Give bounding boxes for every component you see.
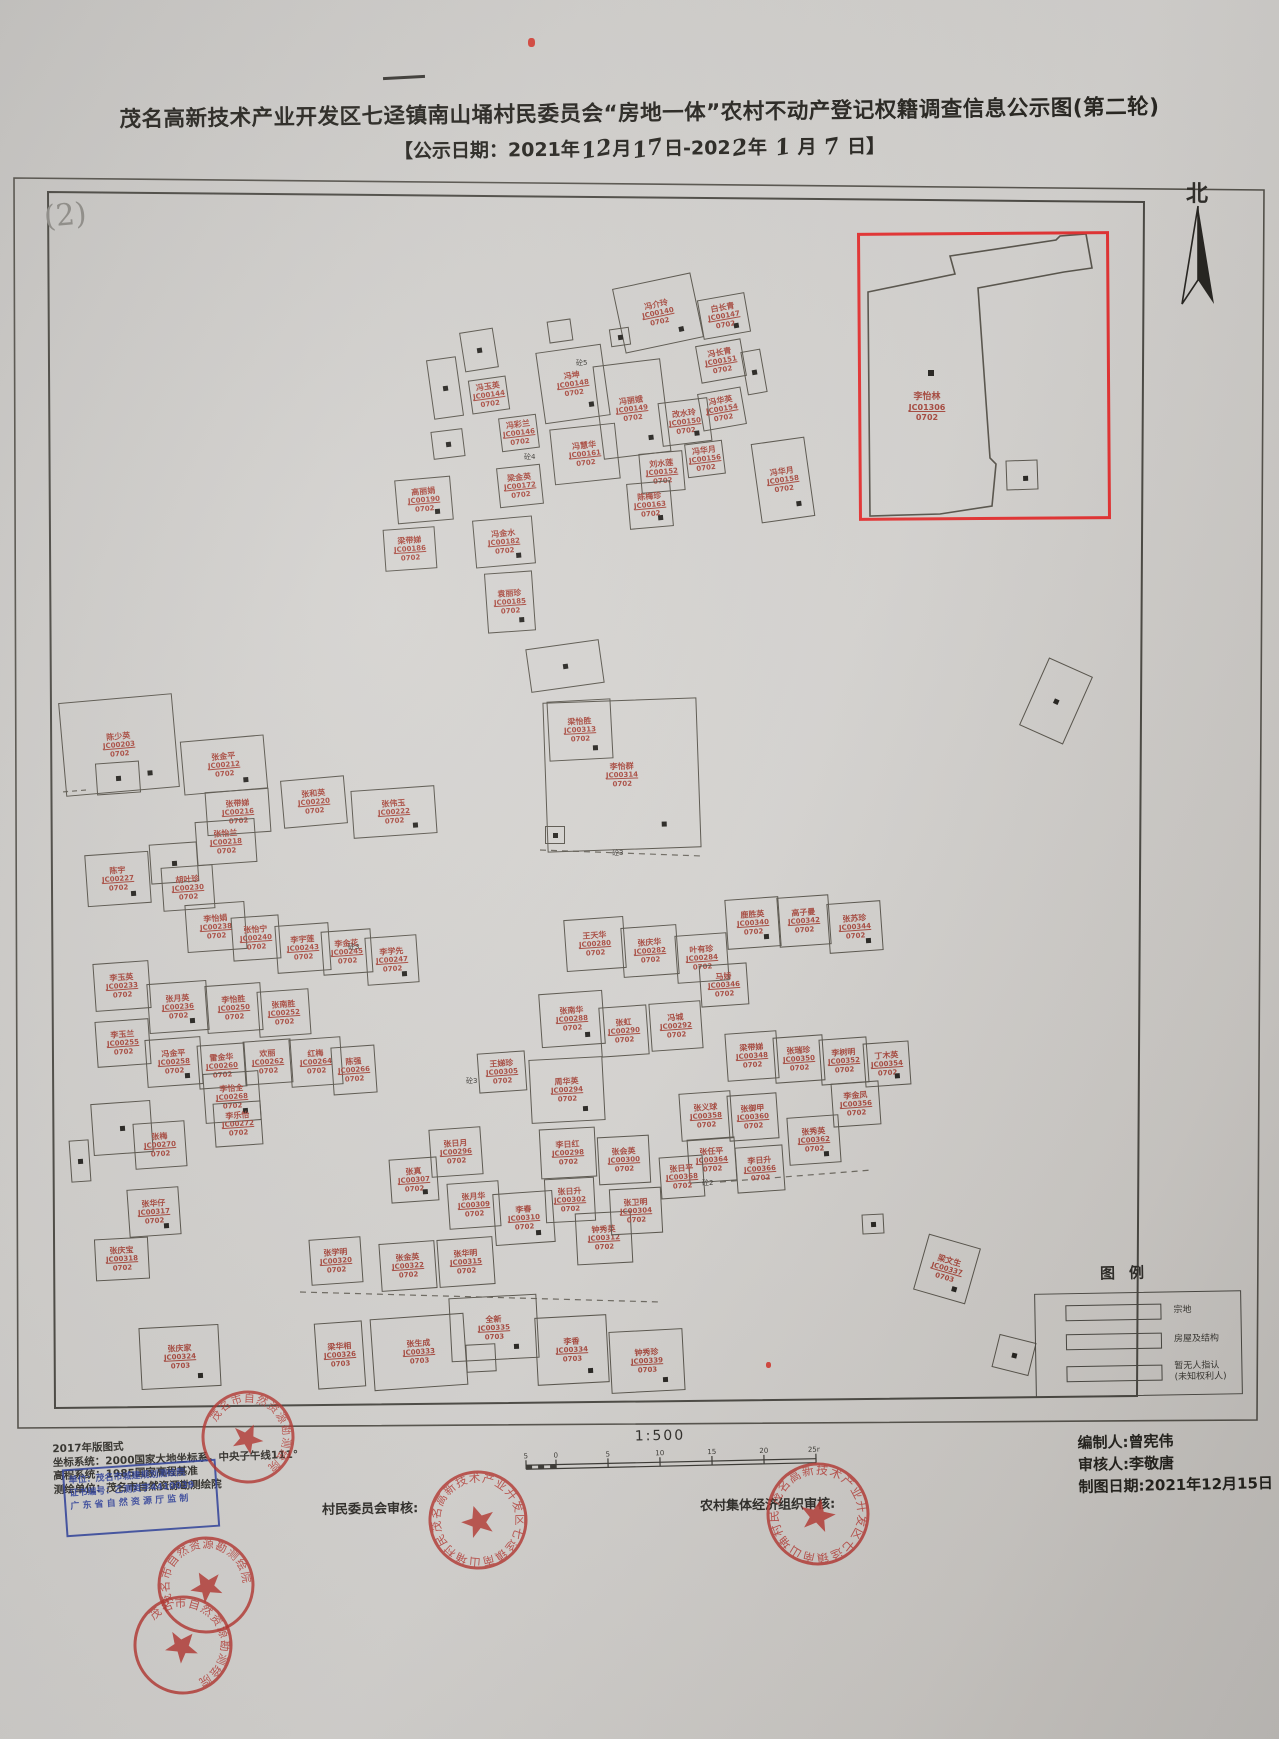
- parcel-label: 李怡群JC003140702: [605, 761, 638, 788]
- parcel-label: 张月华JC003090702: [457, 1191, 491, 1219]
- parcel-building: 李玉兰JC002550702: [94, 1018, 151, 1068]
- parcel-label: 张怡宁JC002400702: [239, 924, 273, 952]
- door-mark: [536, 1230, 541, 1235]
- door-mark: [1053, 698, 1060, 705]
- door-mark: [164, 1223, 169, 1228]
- door-mark: [77, 1158, 82, 1163]
- door-mark: [951, 1286, 957, 1292]
- parcel-building: 全新JC003350703: [448, 1294, 539, 1363]
- door-mark: [583, 1106, 588, 1111]
- door-mark: [695, 430, 701, 436]
- parcel-label-line: 0702: [588, 1242, 620, 1252]
- door-mark: [824, 1151, 829, 1156]
- door-mark: [661, 822, 666, 827]
- door-mark: [190, 1018, 195, 1023]
- parcel-label: 张庆宝JC003180702: [105, 1245, 138, 1273]
- parcel-owner: 李怡林: [892, 392, 962, 403]
- parcel-building: 冯慧华JC001610702: [549, 423, 620, 486]
- parcel-building: [459, 328, 499, 373]
- parcel-label: 张苏珍JC003440702: [838, 913, 872, 941]
- parcel-label: 张学明JC003200702: [319, 1247, 353, 1275]
- door-mark: [198, 1372, 203, 1377]
- parcel-building: 冯彩兰JC001460702: [498, 414, 540, 452]
- legend-label-line2: (未知权利人): [1175, 1372, 1227, 1384]
- parcel-label: 钟秀珍JC003390703: [630, 1347, 663, 1375]
- parcel-code: JC01306: [892, 403, 962, 413]
- parcel-building: 高丽娟JC001900702: [394, 476, 454, 525]
- legend-swatch: [1065, 1303, 1161, 1321]
- red-ink-dot: [766, 1362, 771, 1368]
- parcel-label: 梁文生JC003370703: [928, 1252, 966, 1286]
- parcel-building: 李日升JC003660702: [734, 1144, 785, 1193]
- scale-ratio: 1:500: [600, 1427, 720, 1445]
- legend-row: 暂无人指认(未知权利人): [1036, 1360, 1241, 1386]
- parcel-building: 陈强JC002660702: [330, 1045, 377, 1096]
- door-mark: [895, 1073, 900, 1078]
- parcel-building: 周华英JC002940702: [528, 1056, 605, 1124]
- door-mark: [476, 347, 482, 353]
- parcel-building: [609, 327, 631, 348]
- door-mark: [678, 326, 684, 332]
- svg-text:0: 0: [554, 1452, 559, 1460]
- parcel-label: 冯丽娥JC001490702: [614, 394, 649, 424]
- parcel-building: 冯金平JC002580702: [144, 1036, 203, 1088]
- door-mark: [185, 1072, 190, 1077]
- parcel-building: 高子曼JC003420702: [776, 894, 831, 948]
- parcel-label: 梁带娣JC001860702: [393, 535, 427, 563]
- parcel-label: 张南胜JC002520702: [267, 999, 301, 1027]
- door-mark: [865, 938, 870, 943]
- legend-row: 房屋及结构: [1036, 1331, 1241, 1351]
- parcel-building: 张庆宝JC003180702: [94, 1237, 150, 1282]
- door-mark: [617, 334, 623, 340]
- door-mark: [562, 663, 568, 669]
- parcel-label: 陈少英JC002030702: [102, 731, 136, 760]
- parcel-building: [545, 826, 565, 844]
- parcel-label: 冯介玲JC001400702: [640, 297, 677, 329]
- svg-text:5: 5: [606, 1450, 611, 1458]
- parcel-building: 张义球JC003580702: [678, 1090, 733, 1142]
- parcel-building: 李乐怡JC002720702: [213, 1100, 264, 1147]
- parcel-building: 张瑞珍JC003500702: [772, 1034, 825, 1083]
- parcel-label: 冯城JC002920702: [659, 1012, 693, 1040]
- structure-note: 砼5: [576, 358, 587, 368]
- door-mark: [1011, 1352, 1017, 1358]
- door-mark: [588, 1368, 593, 1373]
- door-mark: [119, 1125, 124, 1130]
- parcel-label: 张伟玉JC002220702: [377, 798, 411, 826]
- parcel-building: 李玉英JC002330702: [92, 960, 151, 1012]
- highlighted-parcel-label: 李怡林 JC01306 0702: [892, 392, 962, 423]
- parcel-label: 李玉英JC002330702: [105, 972, 139, 1000]
- parcel-label: 李乐怡JC002720702: [221, 1110, 255, 1138]
- parcel-label: 高子曼JC003420702: [787, 907, 821, 935]
- parcel-building: [69, 1139, 92, 1182]
- parcel-label: 陈宇JC002270702: [101, 865, 135, 893]
- parcel-building: 陈梅珍JC001630702: [626, 480, 674, 530]
- parcel-building: 张会英JC003000702: [597, 1135, 651, 1186]
- parcel-building: 白长青JC001470702: [697, 292, 751, 340]
- parcel-building: 钟秀珍JC003390703: [608, 1328, 685, 1394]
- parcel-label: 李日红JC002980702: [551, 1139, 584, 1167]
- parcel-building: 冯华月JC001560702: [684, 440, 726, 478]
- parcel-building: 张华明JC003150702: [436, 1236, 495, 1288]
- parcel-label-line: 0702: [564, 734, 596, 744]
- parcel-label: 冯坤JC001480702: [555, 369, 590, 399]
- parcel-label: 张会英JC003000702: [607, 1146, 640, 1174]
- parcel-label: 李宇莲JC002430702: [286, 934, 320, 962]
- door-mark: [148, 770, 153, 775]
- parcel-building: 冯长青JC001510702: [695, 338, 747, 383]
- door-mark: [763, 934, 768, 939]
- parcel-building: 张怡兰JC002180702: [195, 818, 258, 866]
- parcel-label-line: 0702: [620, 1215, 652, 1225]
- parcel-label: 张瑞珍JC003500702: [782, 1045, 816, 1073]
- door-mark: [243, 777, 248, 782]
- parcel-label-line: 0702: [608, 1164, 640, 1174]
- parcel-label-line: 0702: [551, 1094, 583, 1104]
- parcel-building: 袁丽珍JC001850702: [484, 570, 536, 633]
- parcel-label: 梁怡胜JC003130702: [563, 716, 596, 744]
- parcel-label-line: 0702: [554, 1204, 586, 1214]
- parcel-building: 李日红JC002980702: [539, 1127, 598, 1180]
- parcel-label: 鹿胜英JC003400702: [736, 909, 770, 937]
- door-mark: [514, 1344, 519, 1349]
- parcel-building: 张庆家JC003240703: [138, 1324, 221, 1390]
- parcel-building: 李学先JC002470702: [364, 934, 419, 986]
- parcel-building: 张日升JC003020702: [544, 1177, 596, 1224]
- parcel-building: 张卫明JC003040702: [609, 1187, 663, 1236]
- parcel-building: [525, 639, 604, 693]
- parcel-label: 冯华英JC001540702: [704, 393, 740, 424]
- door-mark: [553, 833, 558, 838]
- parcel-label: 张日平JC003680702: [665, 1163, 699, 1191]
- door-mark: [131, 891, 136, 896]
- parcel-building: [861, 1213, 884, 1234]
- legend-swatch: [1066, 1365, 1162, 1383]
- parcel-label: 张和英JC002200702: [297, 788, 331, 817]
- parcel-label: 全新JC003350703: [477, 1314, 510, 1342]
- collective-economy-review-label: 农村集体经济组织审核:: [700, 1493, 836, 1514]
- parcel-label: 冯华月JC001580702: [765, 465, 800, 495]
- parcel-building: 张梅JC002700702: [132, 1120, 187, 1170]
- parcel-label: 胡叶珍JC002300702: [171, 874, 205, 902]
- parcel-label: 张虹JC002900702: [607, 1017, 641, 1045]
- parcel-label: 李怡娟JC002380702: [199, 913, 233, 941]
- parcel-building: 梁华相JC003260703: [314, 1320, 366, 1389]
- door-mark: [796, 501, 802, 507]
- parcel-label-line: 0702: [552, 1157, 584, 1167]
- door-mark: [171, 860, 176, 865]
- parcel-building: 张华仔JC003170702: [126, 1186, 181, 1238]
- legend-label: 房屋及结构: [1174, 1334, 1219, 1346]
- red-ink-dot: [528, 38, 535, 47]
- door-mark: [423, 1189, 428, 1194]
- parcel-label: 冯慧华JC001610702: [568, 439, 603, 468]
- parcel-label: 陈强JC002660702: [337, 1056, 371, 1084]
- review-highlight-rectangle: [857, 231, 1111, 521]
- door-mark: [115, 775, 120, 780]
- door-mark: [402, 971, 407, 976]
- parcel-building: 张金英JC003220702: [378, 1240, 437, 1292]
- parcel-label: 张南华JC002880702: [555, 1005, 589, 1033]
- structure-note: 砼3: [612, 848, 623, 858]
- structure-note: 砼2: [702, 1178, 713, 1188]
- parcel-building: 冯华英JC001540702: [697, 386, 747, 431]
- door-mark: [442, 385, 448, 391]
- parcel-label: 张金平JC002120702: [207, 751, 241, 780]
- parcel-label-line: 0703: [631, 1365, 663, 1375]
- parcel-building: 张秀英JC003620702: [786, 1114, 841, 1166]
- door-mark: [519, 617, 524, 622]
- parcel-building: 张南华JC002880702: [538, 990, 606, 1048]
- svg-text:15: 15: [707, 1448, 716, 1456]
- surveyor-certificate-stamp: 单位：茂名市城建规划测绘院证书编号：乙测资字4410039广 东 省 自 然 资…: [62, 1459, 220, 1538]
- parcel-label: 冯华月JC001560702: [687, 444, 722, 474]
- parcel-building: [95, 761, 141, 796]
- parcel-label: 李金凤JC003560702: [839, 1090, 873, 1118]
- svg-text:10: 10: [655, 1449, 664, 1457]
- parcel-building: 张苏珍JC003440702: [826, 900, 883, 954]
- door-mark: [733, 322, 739, 328]
- legend-label: 暂无人指认(未知权利人): [1174, 1360, 1226, 1383]
- parcel-building: [991, 1334, 1036, 1376]
- parcel-label: 马娇JC003460702: [707, 971, 741, 999]
- parcel-label: 梁带娣JC003480702: [735, 1042, 769, 1070]
- parcel-building: [1019, 657, 1093, 744]
- parcel-label: 李玉兰JC002550702: [106, 1029, 140, 1057]
- parcel-building: 张庆华JC002820702: [620, 924, 679, 978]
- parcel-building: 李香JC003340703: [534, 1314, 609, 1386]
- door-mark: [593, 745, 598, 750]
- parcel-label: 李香JC003340703: [555, 1336, 588, 1364]
- parcel-label: 冯玉英JC001440702: [471, 380, 506, 410]
- parcel-building: 马娇JC003460702: [699, 962, 750, 1007]
- parcel-label: 张金英JC003220702: [391, 1252, 425, 1280]
- door-mark: [663, 1377, 668, 1382]
- parcel-label: 张月英JC002360702: [161, 993, 195, 1021]
- door-mark: [435, 509, 440, 514]
- parcel-building: 张虹JC002900702: [598, 1004, 649, 1057]
- paper-sheet: 茂名高新技术产业开发区七迳镇南山埇村民委员会“房地一体”农村不动产登记权籍调查信…: [0, 0, 1279, 1739]
- parcel-building: 张南胜JC002520702: [256, 988, 311, 1038]
- parcel-building: 冯玉英JC001440702: [468, 376, 510, 415]
- parcel-label: 张生成JC003330703: [402, 1338, 436, 1366]
- parcel-building: 王天华JC002800702: [563, 916, 626, 972]
- door-mark: [649, 435, 655, 441]
- parcel-label: 冯长青JC001510702: [703, 345, 739, 376]
- parcel-label: 红梅JC002640702: [299, 1048, 333, 1076]
- parcel-label-line: 0702: [106, 1263, 138, 1273]
- parcel-building: 冯华月JC001580702: [751, 437, 816, 524]
- parcel-label: 李树明JC003520702: [827, 1047, 861, 1075]
- parcel-building: [547, 318, 574, 343]
- parcel-label-line: 0703: [556, 1354, 588, 1364]
- parcel-building: [430, 428, 465, 460]
- parcel-label: 张怡兰JC002180702: [209, 828, 243, 856]
- parcel-building: 梁文生JC003370703: [913, 1234, 981, 1305]
- door-mark: [589, 402, 595, 408]
- parcel-building: 张金平JC002120702: [180, 734, 268, 795]
- village-committee-review-label: 村民委员会审核:: [322, 1497, 419, 1518]
- legend-label: 宗地: [1173, 1305, 1191, 1317]
- parcel-label: 李怡胜JC002500702: [217, 994, 251, 1022]
- parcel-label: 张庆华JC002820702: [633, 937, 667, 965]
- parcel-label-line: 0703: [164, 1361, 196, 1371]
- parcel-building: 冯城JC002920702: [648, 1000, 703, 1052]
- door-mark: [585, 1031, 590, 1036]
- parcel-label: 梁华相JC003260703: [323, 1341, 357, 1369]
- parcel-building: 王娣珍JC003050702: [477, 1050, 528, 1093]
- door-mark: [751, 369, 757, 375]
- parcel-building: 梁金英JC001720702: [496, 464, 544, 508]
- parcel-building: 李怡胜JC002500702: [204, 982, 263, 1034]
- parcel-building: 张日平JC003680702: [659, 1155, 706, 1200]
- svg-text:20: 20: [759, 1447, 768, 1455]
- parcel-building: 梁带娣JC003480702: [724, 1030, 779, 1082]
- legend-row: 宗地: [1035, 1302, 1240, 1322]
- parcel-label: 王娣珍JC003050702: [485, 1058, 519, 1086]
- door-mark: [413, 822, 418, 827]
- parcel-building: 张御甲JC003600702: [726, 1092, 779, 1141]
- parcel-building: 张真JC003070702: [389, 1156, 440, 1203]
- parcel-building: 张和英JC002200702: [280, 775, 348, 828]
- parcel-label: 王天华JC002800702: [578, 930, 612, 958]
- parcel-label-line: JC00314: [606, 771, 638, 780]
- parcel-building: 陈宇JC002270702: [84, 851, 151, 907]
- parcel-building: [426, 356, 464, 420]
- parcel-label: 张日升JC003020702: [553, 1186, 586, 1214]
- door-mark: [516, 552, 521, 557]
- door-mark: [658, 515, 663, 520]
- door-mark: [445, 441, 451, 447]
- credits-block: 编制人:曾宪伟审核人:李敬唐制图日期:2021年12月15日: [1077, 1428, 1273, 1498]
- legend-swatch: [1066, 1332, 1162, 1350]
- parcel-building: 冯金水JC001820702: [472, 515, 536, 568]
- door-mark: [870, 1221, 875, 1226]
- parcel-label: 张梅JC002700702: [143, 1131, 177, 1159]
- parcel-label: 袁丽珍JC001850702: [493, 588, 527, 616]
- parcel-label: 梁金英JC001720702: [503, 471, 538, 500]
- parcel-label: 张庆家JC003240703: [163, 1343, 196, 1371]
- parcel-building: 梁怡胜JC003130702: [546, 698, 613, 761]
- parcel-building: 张学明JC003200702: [308, 1236, 363, 1286]
- parcel-area-code: 0702: [892, 413, 962, 423]
- parcel-building: 张伟玉JC002220702: [350, 785, 437, 839]
- credit-line: 制图日期:2021年12月15日: [1078, 1472, 1273, 1498]
- svg-text:5: 5: [524, 1452, 529, 1460]
- parcel-building: 张月英JC002360702: [146, 980, 209, 1034]
- parcel-label: 周华英JC002940702: [550, 1076, 583, 1104]
- parcel-building: 梁带娣JC001860702: [383, 526, 438, 572]
- parcel-label-line: 0702: [606, 779, 638, 788]
- parcel-label: 张日月JC002960702: [439, 1138, 473, 1166]
- svg-text:25m: 25m: [808, 1446, 820, 1454]
- parcel-label: 张义球JC003580702: [689, 1102, 723, 1130]
- parcel-label: 张卫明JC003040702: [619, 1197, 652, 1225]
- parcel-building: 鹿胜英JC003400702: [724, 896, 781, 950]
- parcel-label: 张御甲JC003600702: [736, 1103, 770, 1131]
- structure-note: 砼4: [524, 452, 535, 462]
- parcel-label-line: 0703: [478, 1332, 510, 1342]
- parcel-label: 李日升JC003660702: [743, 1155, 777, 1183]
- structure-note: 砼3: [348, 942, 359, 952]
- parcel-label: 张华明JC003150702: [449, 1248, 483, 1276]
- parcel-building: [740, 349, 767, 396]
- parcel-label: 李春JC003100702: [507, 1204, 541, 1232]
- parcel-label: 冯彩兰JC001460702: [501, 418, 536, 448]
- legend-title: 图例: [1100, 1261, 1158, 1283]
- legend-box: 宗地房屋及结构暂无人指认(未知权利人): [1034, 1290, 1243, 1398]
- parcel-building: 张怡宁JC002400702: [231, 914, 282, 961]
- structure-note: 砼3: [466, 1076, 477, 1086]
